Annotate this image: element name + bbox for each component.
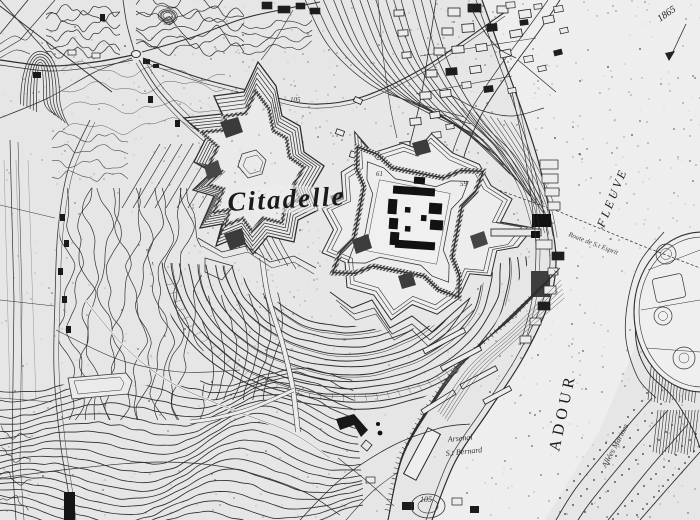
svg-text:105: 105 — [420, 495, 432, 504]
svg-text:61: 61 — [376, 170, 383, 178]
svg-text:Citadelle: Citadelle — [227, 181, 344, 217]
svg-text:59: 59 — [460, 180, 468, 188]
svg-text:105: 105 — [290, 96, 301, 104]
